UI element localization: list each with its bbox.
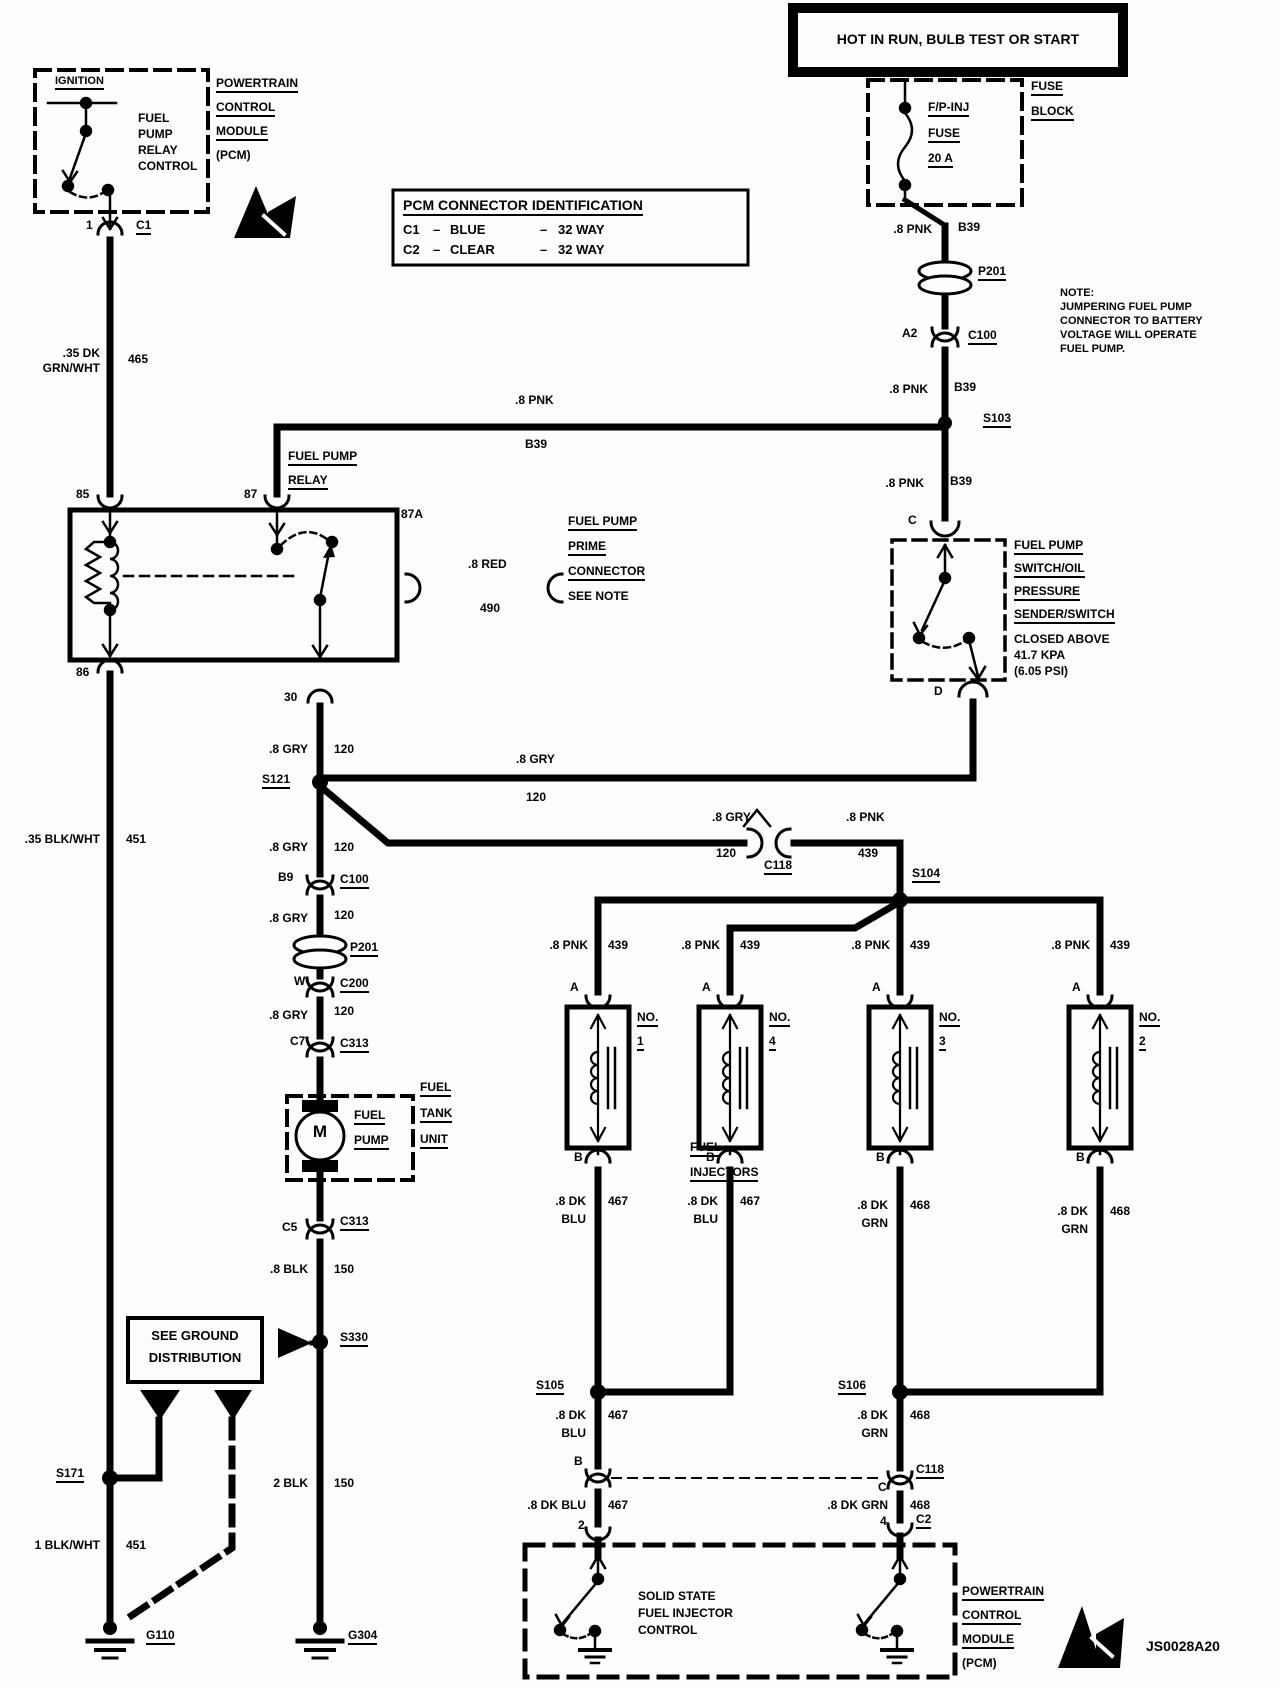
splice-s330-label: S330 (340, 1330, 368, 1347)
c2-left-wire-color: .8 DK BLU (496, 1498, 586, 1513)
fuse-rating-label: 20 A (928, 151, 953, 168)
inj3-num: 3 (939, 1034, 946, 1051)
fuse-type-label: FUSE (928, 126, 960, 143)
s105-wire-color: BLU (512, 1426, 586, 1441)
pin-w-label: W (294, 974, 305, 989)
conn-id-row1-color: BLUE (450, 222, 485, 238)
pin-c7-label: C7 (290, 1034, 305, 1049)
fuel-tank-unit-1: FUEL (420, 1080, 451, 1097)
splice-s121-label: S121 (262, 772, 290, 789)
inj4-out-gauge: .8 DK (644, 1194, 718, 1209)
switch-name-2: SWITCH/OIL (1014, 561, 1085, 578)
inj1-num: 1 (637, 1034, 644, 1051)
fuse-symbol (898, 82, 912, 200)
wire-490-circuit: 490 (480, 601, 500, 616)
inj1-out-color: BLU (512, 1212, 586, 1227)
wire-gry-d-circuit: 120 (526, 790, 546, 805)
splice-s103-label: S103 (983, 411, 1011, 428)
conn-id-row1-id: C1 (403, 222, 420, 238)
see-ground-label-2: DISTRIBUTION (128, 1350, 262, 1366)
fuel-injectors-title-1: FUEL (690, 1140, 721, 1157)
connector-c313-b-label: C313 (340, 1214, 369, 1231)
inj1-pin-a: A (570, 980, 579, 995)
wire-gry-d-color: .8 GRY (516, 752, 555, 767)
pin-c5-label: C5 (282, 1220, 297, 1235)
relay-coil-symbol (86, 512, 298, 656)
oil-pressure-switch-symbol (914, 545, 985, 679)
s106-wire-color: GRN (814, 1426, 888, 1441)
inj1-no: NO. (637, 1010, 658, 1027)
connector-c118-label: C118 (764, 858, 792, 875)
wire-gry-e-circuit: 120 (334, 1004, 354, 1019)
pcm-top-name-2: CONTROL (216, 100, 275, 117)
schematic-artwork (0, 0, 1280, 1688)
conn-id-row2-dash2: – (540, 242, 547, 258)
pcm-top-name-3: MODULE (216, 124, 268, 141)
injector-coil-symbols (591, 1015, 1117, 1141)
relay-name-2: RELAY (288, 473, 328, 490)
wire-blk8-color: .8 BLK (246, 1262, 308, 1277)
c2-right-wire-color: .8 DK GRN (798, 1498, 888, 1513)
wire-pnk-a-circuit: B39 (958, 220, 980, 235)
wire-gry-c-color: .8 GRY (246, 911, 308, 926)
wire-gry-c-circuit: 120 (334, 908, 354, 923)
conn-id-row1-ways: 32 WAY (558, 222, 605, 238)
pin-b9-label: B9 (278, 870, 293, 885)
connector-c100-mid-label: C100 (340, 872, 369, 889)
inj2-feed-circuit: 439 (1110, 938, 1130, 953)
wire-gry-e-color: .8 GRY (246, 1008, 308, 1023)
pin-a2-label: A2 (902, 326, 917, 341)
solid-state-control-label: SOLID STATE FUEL INJECTOR CONTROL (638, 1588, 733, 1639)
inj4-feed-color: .8 PNK (640, 938, 720, 953)
grommet-p201-right-label: P201 (978, 264, 1006, 281)
wire-pnk-c-color: .8 PNK (858, 476, 924, 491)
fuel-pump-label-2: PUMP (354, 1133, 389, 1150)
relay-pin-85: 85 (76, 487, 89, 502)
wire-pnk-c118-circuit: 439 (858, 846, 878, 861)
inj3-feed-circuit: 439 (910, 938, 930, 953)
pcm-bottom-name-4: (PCM) (962, 1656, 997, 1671)
connector-c1-label: C1 (136, 218, 151, 235)
inj4-num: 4 (769, 1034, 776, 1051)
inj1-out-gauge: .8 DK (512, 1194, 586, 1209)
wire-gry-b-circuit: 120 (334, 840, 354, 855)
prime-see-note: SEE NOTE (568, 589, 629, 604)
relay-contact-symbol (270, 512, 337, 657)
wiring-diagram-fuel-pump-circuit: HOT IN RUN, BULB TEST OR START F/P-INJ F… (0, 0, 1280, 1688)
inj2-out-color: GRN (1014, 1222, 1088, 1237)
inj1-out-circuit: 467 (608, 1194, 628, 1209)
inj2-no: NO. (1139, 1010, 1160, 1027)
pin-c-bottom-label: C (878, 1480, 887, 1495)
inj2-out-circuit: 468 (1110, 1204, 1130, 1219)
conn-id-row2-ways: 32 WAY (558, 242, 605, 258)
esd-symbol-bottom (1058, 1606, 1124, 1668)
switch-desc-3: (6.05 PSI) (1014, 664, 1068, 679)
wire-gry-a-circuit: 120 (334, 742, 354, 757)
wire-pnk-c-circuit: B39 (950, 474, 972, 489)
inj4-out-circuit: 467 (740, 1194, 760, 1209)
fuel-injectors-title-2: INJECTORS (690, 1165, 758, 1182)
c2-left-wire-circuit: 467 (608, 1498, 628, 1513)
wire-pnk-c118-color: .8 PNK (846, 810, 885, 825)
pcm-connector-id-title: PCM CONNECTOR IDENTIFICATION (403, 197, 643, 216)
inj2-pin-b: B (1076, 1150, 1085, 1165)
fuel-pump-label-1: FUEL (354, 1108, 385, 1125)
splice-s105-label: S105 (536, 1378, 564, 1395)
fuel-tank-unit-2: TANK (420, 1106, 452, 1123)
switch-name-3: PRESSURE (1014, 584, 1080, 601)
wire-pnk-a-color: .8 PNK (866, 222, 932, 237)
inj4-feed-circuit: 439 (740, 938, 760, 953)
inj4-pin-a: A (702, 980, 711, 995)
inj2-pin-a: A (1072, 980, 1081, 995)
connector-c2-label: C2 (916, 1512, 931, 1529)
injector-driver-symbols (555, 1556, 912, 1663)
wire-gry-c118-circuit: 120 (716, 846, 736, 861)
inj1-feed-color: .8 PNK (508, 938, 588, 953)
fuse-block-label-2: BLOCK (1031, 104, 1074, 121)
injector-boxes (567, 1007, 1131, 1148)
wire-blkwht35-circuit: 451 (126, 832, 146, 847)
relay-pin-30: 30 (284, 690, 297, 705)
connector-c118-bottom-label: C118 (916, 1462, 944, 1479)
inj2-num: 2 (1139, 1034, 1146, 1051)
connector-c313-a-label: C313 (340, 1036, 369, 1053)
jumper-note: NOTE: JUMPERING FUEL PUMP CONNECTOR TO B… (1060, 286, 1203, 356)
ground-distribution-dashed-wire (122, 1420, 232, 1622)
inj3-feed-color: .8 PNK (810, 938, 890, 953)
inj3-out-color: GRN (814, 1216, 888, 1231)
grommet-p201-right (919, 262, 971, 294)
fuse-name-label: F/P-INJ (928, 100, 969, 117)
inj3-pin-a: A (872, 980, 881, 995)
conn-id-row2-id: C2 (403, 242, 420, 258)
s105-wire-gauge: .8 DK (512, 1408, 586, 1423)
inj4-no: NO. (769, 1010, 790, 1027)
conn-id-row2-color: CLEAR (450, 242, 495, 258)
inj3-pin-b: B (876, 1150, 885, 1165)
wire-465-color: .35 DK GRN/WHT (28, 346, 100, 376)
s106-wire-gauge: .8 DK (814, 1408, 888, 1423)
splice-s106-label: S106 (838, 1378, 866, 1395)
relay-name-1: FUEL PUMP (288, 449, 357, 466)
fuse-block-label-1: FUSE (1031, 79, 1063, 96)
grommet-p201-middle (294, 936, 346, 968)
wire-b39-run-circuit: B39 (525, 437, 547, 452)
motor-m-label: M (306, 1124, 334, 1139)
fuel-pump-switch-dashed-box (892, 540, 1005, 680)
wire-blk2-circuit: 150 (334, 1476, 354, 1491)
switch-name-1: FUEL PUMP (1014, 538, 1083, 555)
inj4-out-color: BLU (644, 1212, 718, 1227)
connector-c200-label: C200 (340, 976, 369, 993)
pin-1-label: 1 (86, 218, 93, 233)
switch-pin-c: C (908, 513, 917, 528)
switch-name-4: SENDER/SWITCH (1014, 607, 1115, 624)
fuel-pump-relay-control-label: FUEL PUMP RELAY CONTROL (138, 110, 197, 174)
conn-id-row1-dash1: – (433, 222, 440, 238)
pin-b-bottom-label: B (574, 1454, 583, 1469)
conn-id-row2-dash1: – (433, 242, 440, 258)
esd-symbol-top (234, 186, 296, 238)
ground-g110 (88, 1621, 132, 1658)
wire-465-circuit: 465 (128, 352, 148, 367)
relay-pin-87: 87 (244, 487, 257, 502)
inj1-feed-circuit: 439 (608, 938, 628, 953)
conn-id-row1-dash2: – (540, 222, 547, 238)
pcm-bottom-name-3: MODULE (962, 1632, 1014, 1649)
ground-g304-label: G304 (348, 1628, 377, 1645)
pcm-top-name-4: (PCM) (216, 148, 251, 163)
inj3-no: NO. (939, 1010, 960, 1027)
relay-pin-86: 86 (76, 665, 89, 680)
ground-g304 (298, 1621, 342, 1658)
inj3-out-circuit: 468 (910, 1198, 930, 1213)
wire-pnk-b-color: .8 PNK (862, 382, 928, 397)
pcm-bottom-name-2: CONTROL (962, 1608, 1021, 1625)
wire-gry-a-color: .8 GRY (246, 742, 308, 757)
s106-wire-circuit: 468 (910, 1408, 930, 1423)
pin-2-label: 2 (578, 1518, 585, 1533)
relay-pin-87a: 87A (401, 507, 423, 522)
wire-blkwht1-circuit: 451 (126, 1538, 146, 1553)
prime-label-1: FUEL PUMP (568, 514, 637, 531)
inj2-feed-color: .8 PNK (1010, 938, 1090, 953)
switch-desc-1: CLOSED ABOVE (1014, 632, 1110, 647)
wire-pnk-b-circuit: B39 (954, 380, 976, 395)
c2-right-wire-circuit: 468 (910, 1498, 930, 1513)
switch-desc-2: 41.7 KPA (1014, 648, 1065, 663)
prime-label-2: PRIME (568, 539, 606, 556)
wire-b39-run-color: .8 PNK (515, 393, 554, 408)
wire-blkwht35-color: .35 BLK/WHT (0, 832, 100, 847)
hot-in-run-label: HOT IN RUN, BULB TEST OR START (803, 31, 1113, 48)
switch-pin-d: D (934, 684, 943, 699)
ignition-switch-symbol (48, 98, 117, 229)
pin-4-label: 4 (880, 1514, 887, 1529)
wire-blk8-circuit: 150 (334, 1262, 354, 1277)
diagram-id: JS0028A20 (1146, 1638, 1220, 1655)
inj2-out-gauge: .8 DK (1014, 1204, 1088, 1219)
wire-490-color: .8 RED (468, 557, 507, 572)
grommet-p201-mid-label: P201 (350, 940, 378, 957)
pcm-top-name-1: POWERTRAIN (216, 76, 298, 93)
wire-gry-c118-color: .8 GRY (712, 810, 751, 825)
see-ground-label-1: SEE GROUND (128, 1328, 262, 1344)
inj3-out-gauge: .8 DK (814, 1198, 888, 1213)
prime-label-3: CONNECTOR (568, 564, 645, 581)
pcm-bottom-name-1: POWERTRAIN (962, 1584, 1044, 1601)
fuel-tank-unit-3: UNIT (420, 1132, 448, 1149)
inj1-pin-b: B (574, 1150, 583, 1165)
splice-s171-label: S171 (56, 1466, 84, 1483)
splice-s104-label: S104 (912, 866, 940, 883)
ground-g110-label: G110 (146, 1628, 175, 1645)
s105-wire-circuit: 467 (608, 1408, 628, 1423)
wire-blkwht1-color: 1 BLK/WHT (8, 1538, 100, 1553)
ignition-label: IGNITION (55, 74, 104, 90)
wire-blk2-color: 2 BLK (250, 1476, 308, 1491)
wire-gry-b-color: .8 GRY (246, 840, 308, 855)
connector-c100-right-label: C100 (968, 328, 997, 345)
